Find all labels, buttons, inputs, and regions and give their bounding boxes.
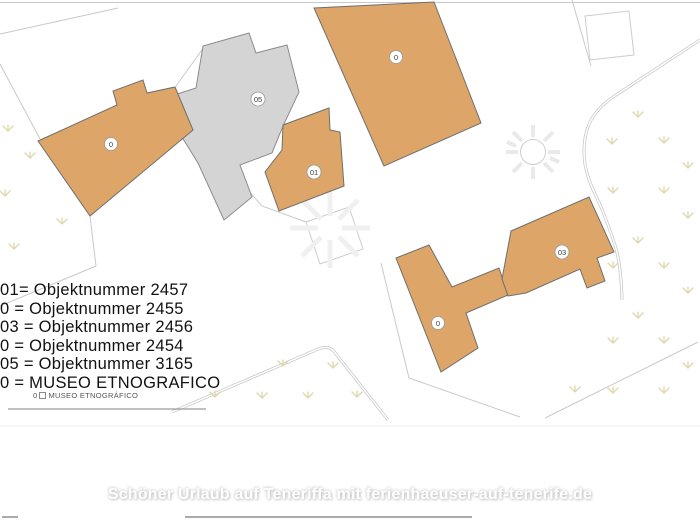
svg-text:0: 0 [436,319,440,328]
watermark-text: Schöner Urlaub auf Teneriffa mit ferienh… [0,486,700,504]
legend-entry: 03 = Objektnummer 2456 [0,318,220,337]
square-marker-icon [39,392,46,399]
tree-symbol [506,125,560,179]
badge-building-03: 03 [555,245,569,259]
parcel-square-top-right [585,11,634,60]
svg-text:03: 03 [558,248,566,257]
badge-building-left: 0 [105,138,118,151]
svg-text:05: 05 [254,95,262,104]
legend-entry: 05 = Objektnummer 3165 [0,355,220,374]
legend-entry: 0 = MUSEO ETNOGRAFICO [0,374,220,393]
footnote-prefix: 0 [33,391,37,400]
legend-entry: 01= Objektnummer 2457 [0,281,220,300]
badge-building-bottom-left: 0 [432,317,445,330]
road-right [584,40,700,300]
legend-entry: 0 = Objektnummer 2455 [0,300,220,319]
legend-entry: 0 = Objektnummer 2454 [0,337,220,356]
svg-text:0: 0 [109,140,113,149]
site-plan-page: 0 0 05 01 0 03 [0,0,700,525]
footnote-text: MUSEO ETNOGRÁFICO [48,391,138,400]
building-bottom-left-footprint [396,245,508,372]
site-plan-map: 0 0 05 01 0 03 [0,0,700,525]
legend-footnote: 0 MUSEO ETNOGRÁFICO [33,391,138,400]
legend: 01= Objektnummer 2457 0 = Objektnummer 2… [0,281,220,393]
badge-building-01: 01 [307,165,321,179]
svg-text:01: 01 [310,168,318,177]
svg-text:0: 0 [394,53,398,62]
badge-building-top: 0 [390,51,403,64]
badge-building-05: 05 [251,92,265,106]
